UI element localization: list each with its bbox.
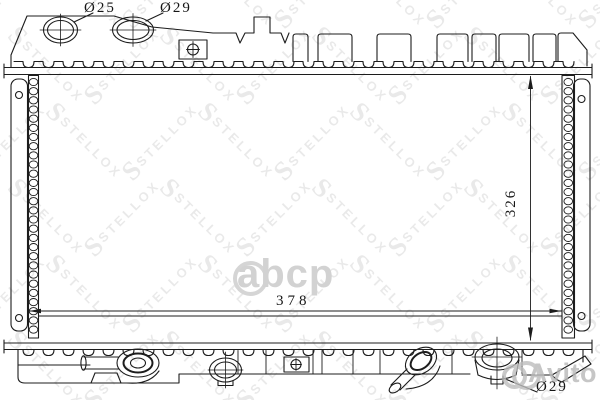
top-tank-scalloped-edge bbox=[14, 62, 574, 68]
bottom-tank-segments bbox=[238, 351, 522, 374]
mount-foot bbox=[91, 373, 121, 383]
top-tank bbox=[4, 13, 592, 78]
left-side-bracket bbox=[11, 79, 28, 331]
filler-neck-25 bbox=[40, 14, 81, 46]
filler-neck-29 bbox=[110, 14, 156, 47]
dimension-326 bbox=[528, 76, 533, 342]
dim-label-326: 326 bbox=[503, 183, 521, 223]
top-tank-ribs bbox=[293, 34, 556, 62]
dim-label-o29-top: Ø29 bbox=[160, 0, 192, 17]
abcp-text: abcp bbox=[237, 252, 334, 296]
right-side-bracket bbox=[574, 79, 591, 331]
top-drain-plug-symbol bbox=[179, 40, 207, 59]
radiator-drawing-image: SSTELLOXSSTELLOXSSTELLOXSSTELLOXSSTELLOX… bbox=[0, 0, 600, 400]
abcp-watermark: abcp bbox=[221, 252, 318, 297]
dim-label-o29-bottom: Ø29 bbox=[536, 379, 568, 396]
bottom-drain-plug-symbol bbox=[284, 357, 309, 372]
dim-label-378: 378 bbox=[276, 293, 311, 310]
dim-label-o25: Ø25 bbox=[84, 0, 116, 17]
